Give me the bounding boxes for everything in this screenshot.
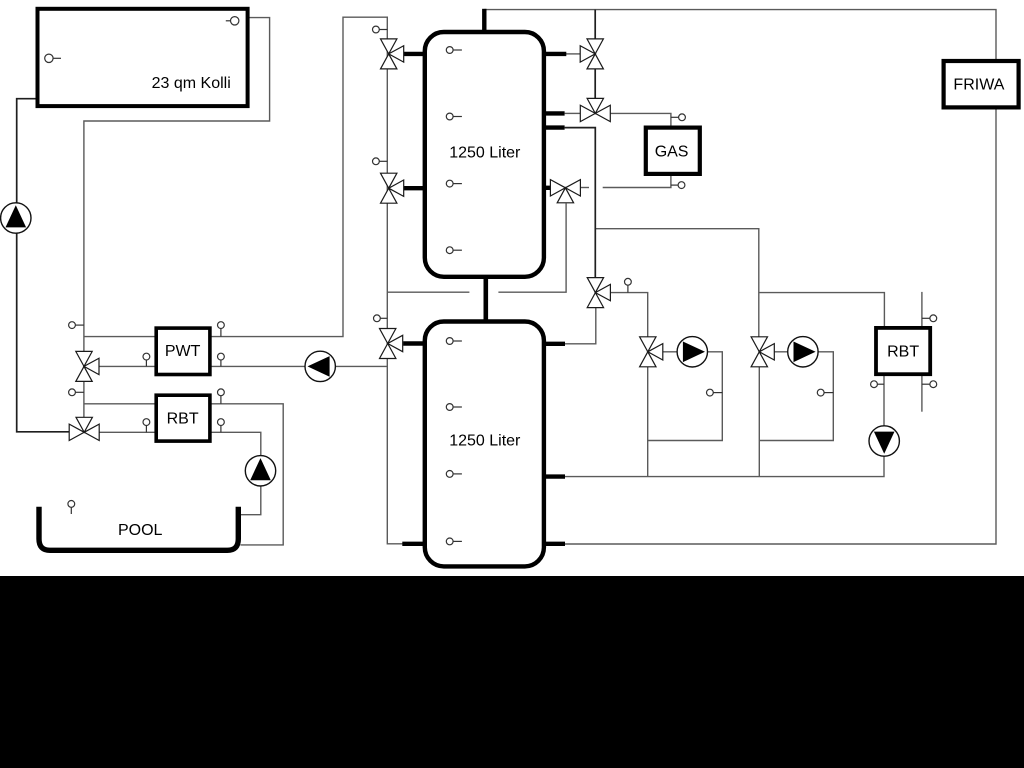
svg-text:PWT: PWT [165,343,201,360]
svg-text:RBT: RBT [167,411,199,428]
svg-text:POOL: POOL [118,522,163,539]
svg-text:23 qm Kolli: 23 qm Kolli [152,75,231,92]
svg-text:FRIWA: FRIWA [953,76,1004,93]
svg-text:RBT: RBT [887,343,919,360]
svg-text:1250 Liter: 1250 Liter [449,144,521,161]
svg-text:GAS: GAS [655,143,689,160]
svg-text:1250 Liter: 1250 Liter [449,433,521,450]
